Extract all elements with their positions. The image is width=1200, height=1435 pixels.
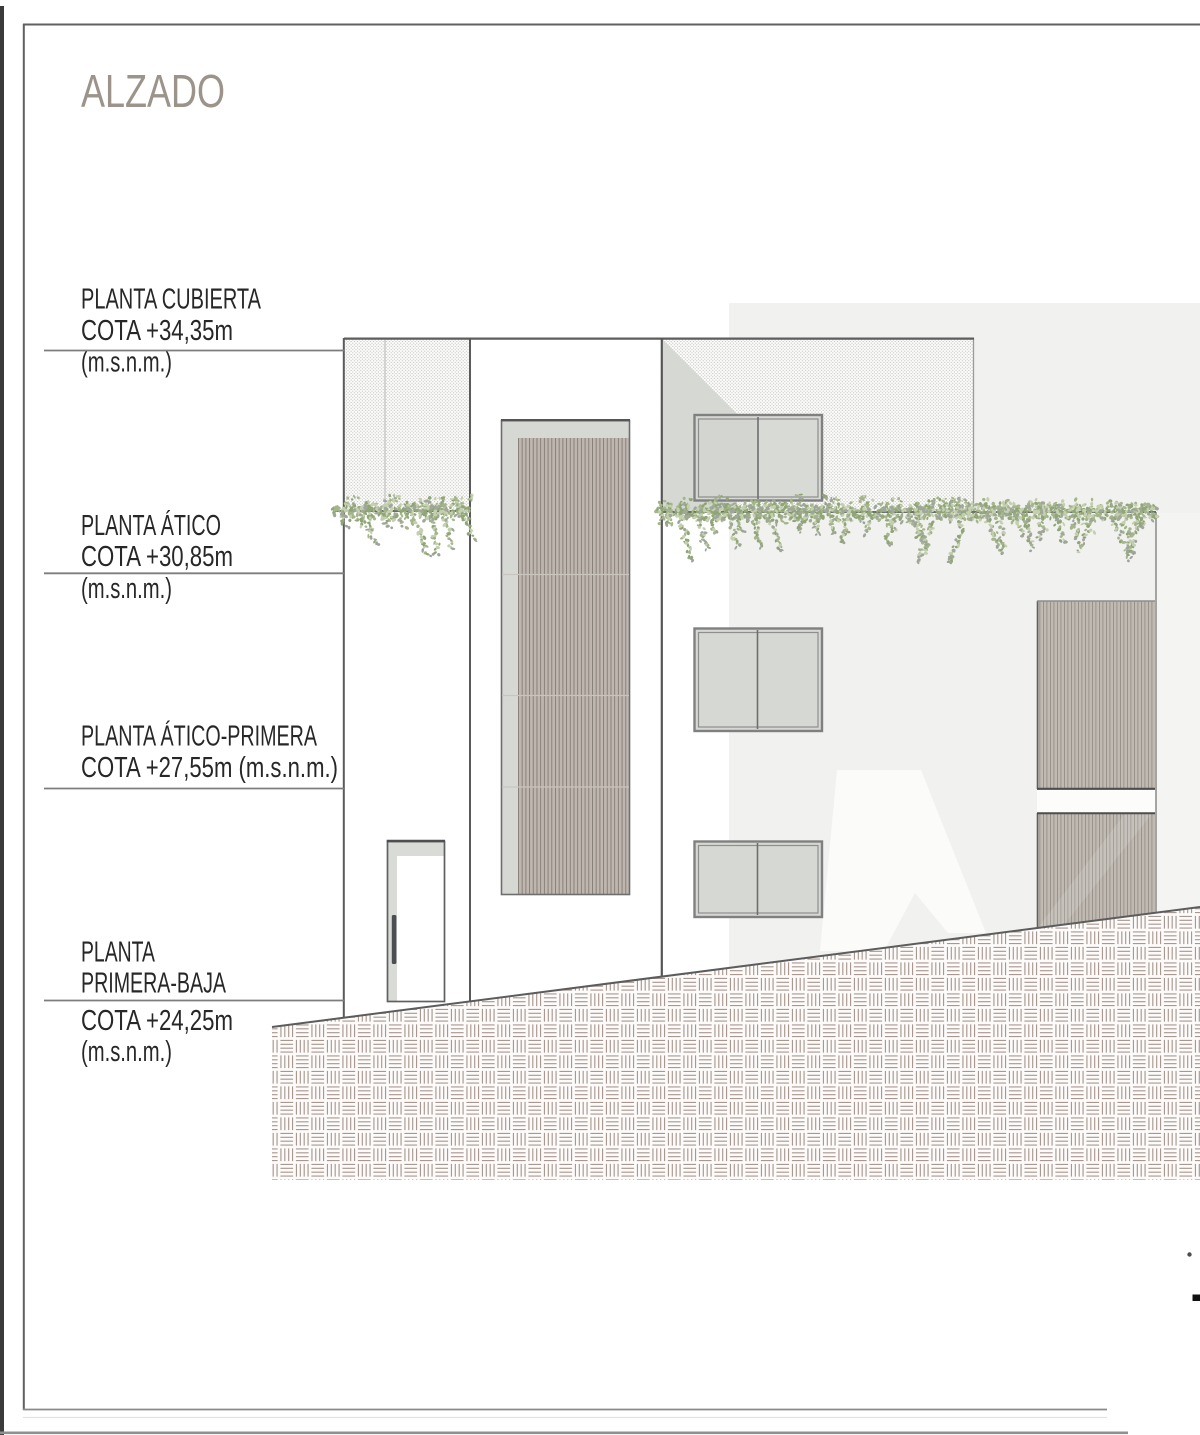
svg-text:(m.s.n.m.): (m.s.n.m.) <box>81 1036 172 1068</box>
svg-text:COTA +24,25m: COTA +24,25m <box>81 1005 233 1037</box>
svg-text:PRIMERA-BAJA: PRIMERA-BAJA <box>81 968 226 1000</box>
svg-text:(m.s.n.m.): (m.s.n.m.) <box>81 573 172 605</box>
svg-text:COTA +34,35m: COTA +34,35m <box>81 315 233 347</box>
svg-text:PLANTA ÁTICO: PLANTA ÁTICO <box>81 509 221 542</box>
svg-text:PLANTA ÁTICO-PRIMERA: PLANTA ÁTICO-PRIMERA <box>81 720 317 753</box>
svg-text:PLANTA CUBIERTA: PLANTA CUBIERTA <box>81 284 261 316</box>
svg-text:PLANTA: PLANTA <box>81 937 155 969</box>
svg-text:COTA +27,55m (m.s.n.m.): COTA +27,55m (m.s.n.m.) <box>81 752 338 784</box>
svg-text:ALZADO: ALZADO <box>81 65 225 117</box>
svg-text:COTA +30,85m: COTA +30,85m <box>81 541 233 573</box>
